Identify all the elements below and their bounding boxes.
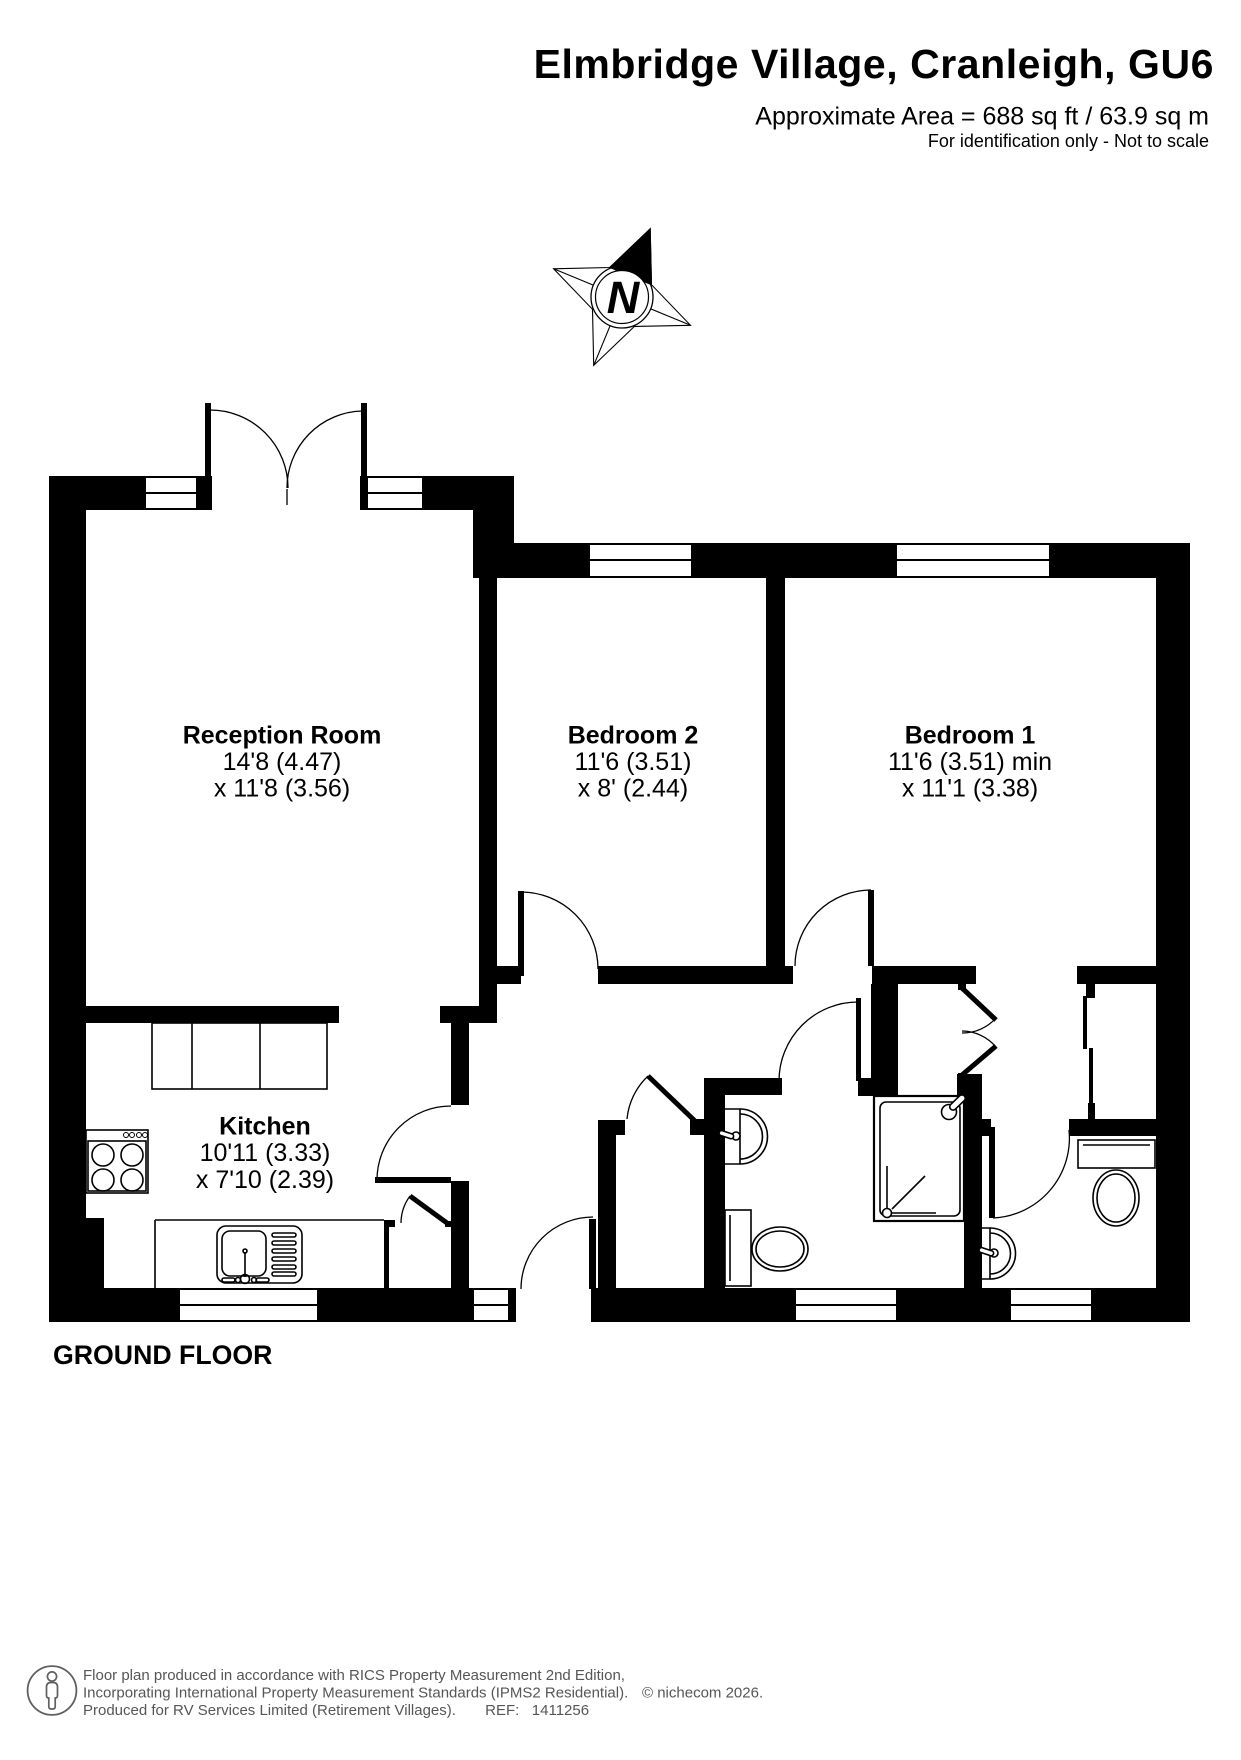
svg-text:© nichecom 2026.: © nichecom 2026. xyxy=(642,1685,763,1702)
svg-text:10'11 (3.33): 10'11 (3.33) xyxy=(200,1139,331,1167)
svg-text:Approximate Area = 688 sq ft /: Approximate Area = 688 sq ft / 63.9 sq m xyxy=(755,103,1209,131)
svg-text:For identification only - Not: For identification only - Not to scale xyxy=(928,131,1209,151)
svg-text:11'6 (3.51) min: 11'6 (3.51) min xyxy=(888,748,1052,776)
svg-text:Elmbridge Village, Cranleigh,: Elmbridge Village, Cranleigh, GU6 xyxy=(534,41,1214,87)
svg-text:x 8' (2.44): x 8' (2.44) xyxy=(578,775,688,803)
svg-text:11'6 (3.51): 11'6 (3.51) xyxy=(575,748,692,776)
svg-text:Kitchen: Kitchen xyxy=(219,1113,311,1141)
svg-text:Incorporating International Pr: Incorporating International Property Mea… xyxy=(83,1685,628,1702)
svg-text:Floor plan produced in accorda: Floor plan produced in accordance with R… xyxy=(83,1667,625,1684)
svg-text:Produced for RV Services Limit: Produced for RV Services Limited (Retire… xyxy=(83,1702,589,1719)
svg-text:x 11'1 (3.38): x 11'1 (3.38) xyxy=(902,775,1038,803)
svg-text:14'8 (4.47): 14'8 (4.47) xyxy=(223,748,342,776)
svg-text:GROUND FLOOR: GROUND FLOOR xyxy=(53,1340,272,1370)
svg-text:Bedroom 1: Bedroom 1 xyxy=(905,722,1036,750)
svg-text:Reception Room: Reception Room xyxy=(183,722,382,750)
svg-text:x 7'10 (2.39): x 7'10 (2.39) xyxy=(196,1166,334,1194)
svg-text:N: N xyxy=(607,272,641,323)
svg-text:Bedroom 2: Bedroom 2 xyxy=(568,722,699,750)
svg-text:x 11'8 (3.56): x 11'8 (3.56) xyxy=(214,775,350,803)
